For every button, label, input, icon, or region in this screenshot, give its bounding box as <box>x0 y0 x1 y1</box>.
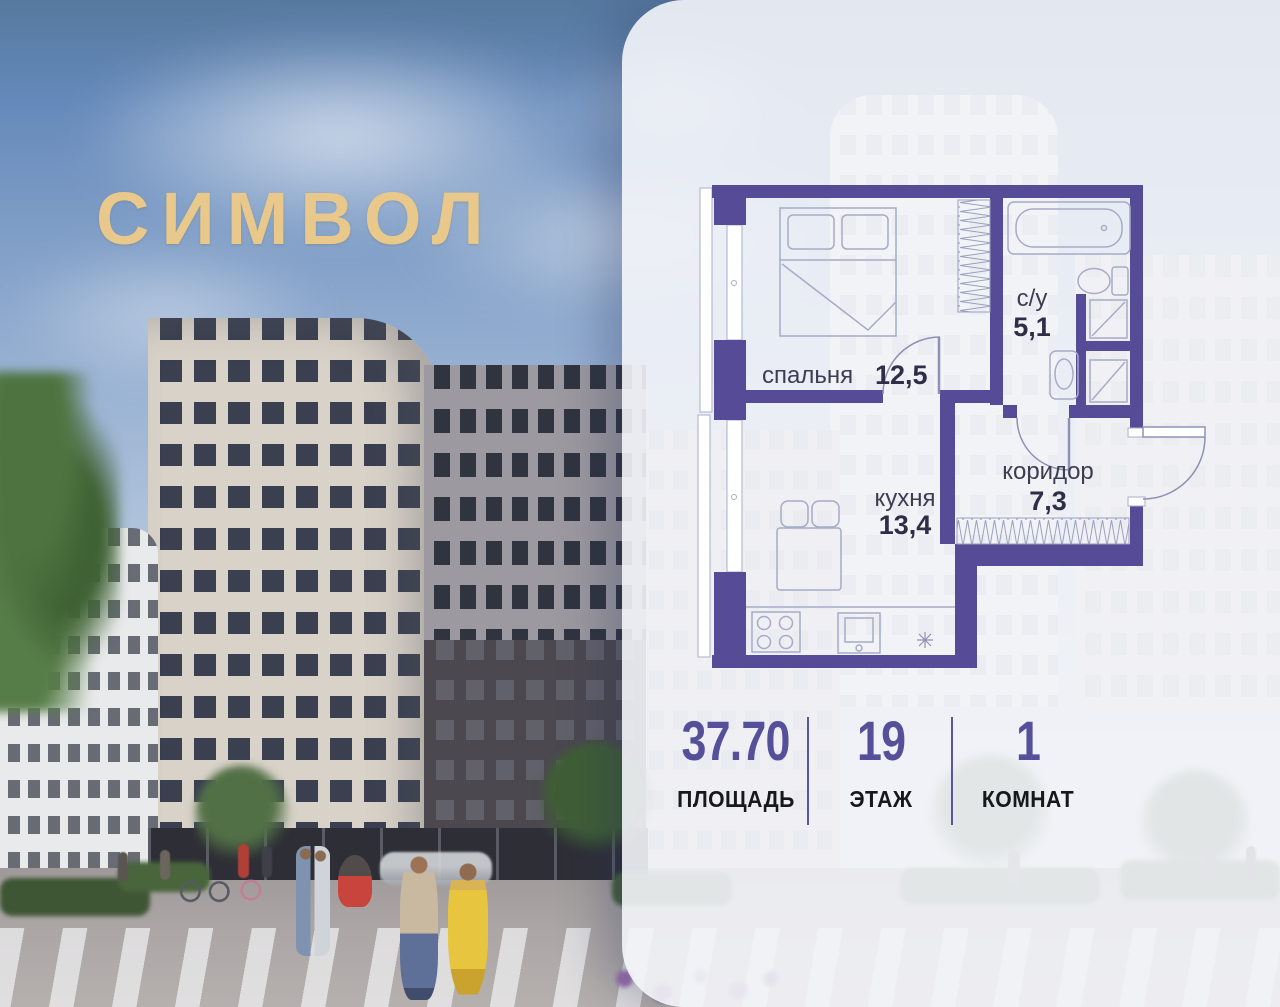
pedestrian-yellow-dress <box>448 858 488 1000</box>
room-label-kitchen: кухня <box>874 485 935 512</box>
brand-logo: СИМВОЛ <box>96 176 556 261</box>
moped <box>338 855 372 907</box>
room-area-bathroom: 5,1 <box>1013 312 1051 342</box>
room-label-bedroom: спальня <box>762 362 853 389</box>
bike-rack <box>176 870 272 906</box>
building-main <box>148 318 440 880</box>
room-label-corridor: коридор <box>1002 458 1094 485</box>
entrance-door <box>1128 427 1205 506</box>
pedestrian <box>262 846 272 878</box>
room-area-kitchen: 13,4 <box>879 510 932 540</box>
room-labels: спальня 12,5 с/у 5,1 кухня 13,4 коридор … <box>762 285 1094 540</box>
pedestrian <box>400 852 438 1000</box>
pedestrian <box>160 850 170 880</box>
ceiling-light-symbol <box>917 632 933 648</box>
room-area-bedroom: 12,5 <box>875 360 928 390</box>
room-label-bathroom: с/у <box>1017 285 1048 312</box>
pedestrian <box>118 852 128 882</box>
plan-walls <box>712 185 1143 668</box>
room-area-corridor: 7,3 <box>1029 486 1067 516</box>
pedestrian-couple <box>296 846 330 956</box>
large-tree <box>0 372 120 712</box>
pedestrian <box>238 844 249 878</box>
building-right-upper <box>424 365 646 643</box>
floor-plan: спальня 12,5 с/у 5,1 кухня 13,4 коридор … <box>620 0 1280 1007</box>
listing-view: СИМВОЛ <box>0 0 1280 1007</box>
bedroom-fixtures <box>780 208 896 336</box>
